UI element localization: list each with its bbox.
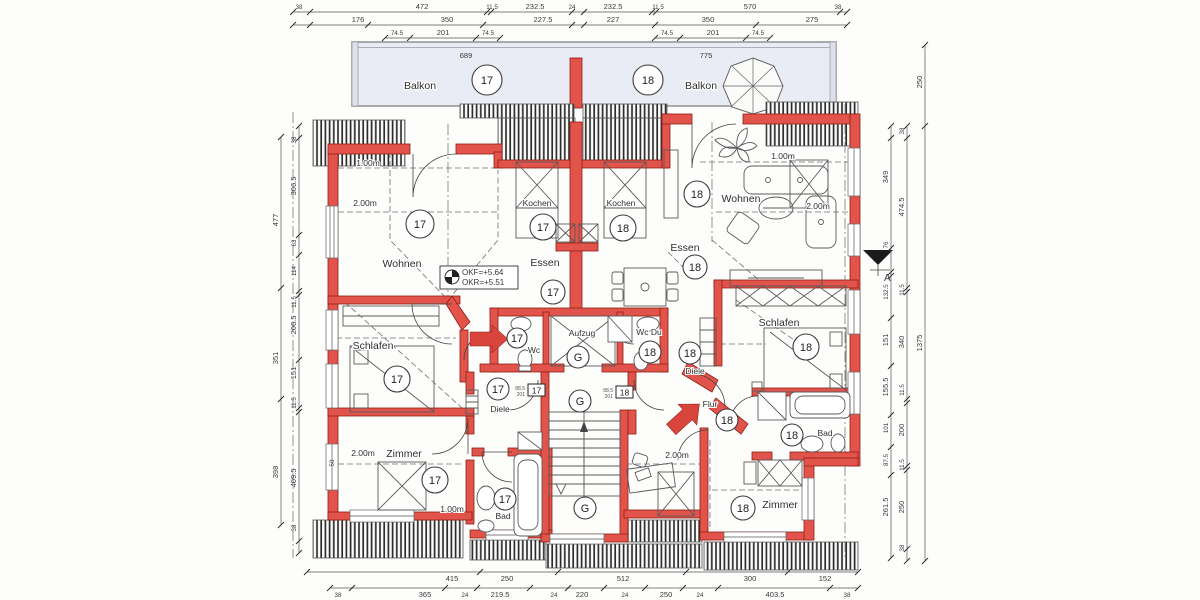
svg-text:219.5: 219.5 xyxy=(491,590,510,599)
svg-text:227.5: 227.5 xyxy=(534,15,553,24)
dim-extra-50: 50 xyxy=(329,459,336,466)
svg-text:415: 415 xyxy=(446,574,459,583)
stair-arrow-outline xyxy=(556,484,566,494)
svg-text:340: 340 xyxy=(897,336,906,349)
svg-text:403.5: 403.5 xyxy=(766,590,785,599)
svg-text:11.5: 11.5 xyxy=(899,284,906,296)
unit-badge-17: 17 xyxy=(494,488,516,510)
balcony-width-left: 689 xyxy=(460,51,473,60)
room-label-zimmer-18: Zimmer xyxy=(762,499,798,511)
svg-text:151: 151 xyxy=(289,367,298,380)
svg-text:1375: 1375 xyxy=(915,335,924,352)
svg-text:132.5: 132.5 xyxy=(883,284,890,300)
room-label-schlafen-17: Schlafen xyxy=(353,340,394,352)
unit-badge-17: 17 xyxy=(507,328,527,348)
svg-text:38: 38 xyxy=(835,4,842,11)
unit-badge-18: 18 xyxy=(633,65,663,95)
svg-text:74.5: 74.5 xyxy=(391,30,404,37)
svg-text:114: 114 xyxy=(291,266,298,276)
svg-text:306.5: 306.5 xyxy=(289,177,298,196)
svg-text:24: 24 xyxy=(462,592,469,599)
room-labels: Wohnen Wohnen Kochen Kochen Essen Essen … xyxy=(351,151,833,521)
svg-text:17: 17 xyxy=(391,374,403,386)
svg-text:472: 472 xyxy=(416,2,429,11)
height-line-label: 1.00m xyxy=(440,504,464,514)
unit-badge-18: 18 xyxy=(683,255,707,279)
svg-text:349: 349 xyxy=(881,171,890,184)
unit-badge-18: 18 xyxy=(679,342,701,364)
room-label-aufzug: Aufzug xyxy=(569,328,596,338)
svg-text:232.5: 232.5 xyxy=(526,2,545,11)
core-badge-g: G xyxy=(574,497,596,519)
wardrobe-17 xyxy=(343,306,439,326)
svg-text:250: 250 xyxy=(915,76,924,89)
svg-text:18: 18 xyxy=(644,347,656,359)
unit-badge-18: 18 xyxy=(639,341,661,363)
unit-badge-17: 17 xyxy=(487,378,509,400)
unit-badge-18: 18 xyxy=(684,181,710,207)
svg-text:512: 512 xyxy=(617,574,630,583)
svg-text:300: 300 xyxy=(744,574,757,583)
svg-text:18: 18 xyxy=(721,415,733,427)
svg-text:176: 176 xyxy=(352,15,365,24)
room-label-essen-18: Essen xyxy=(670,242,699,254)
door-plate-17: 17 xyxy=(528,384,545,396)
svg-text:87.5: 87.5 xyxy=(883,453,890,466)
svg-text:474.5: 474.5 xyxy=(897,198,906,217)
room-label-diele-18: Diele xyxy=(685,366,705,376)
room-label-balkon-left: Balkon xyxy=(404,80,436,92)
floor-plan-drawing: 689 775 Balkon Balkon xyxy=(0,0,1200,600)
height-line-label: 1.00m xyxy=(356,158,380,168)
level-note-box: OKF=+5.64 OKR=+5.51 xyxy=(440,266,518,289)
svg-text:18: 18 xyxy=(800,342,812,354)
furniture xyxy=(343,128,850,536)
window xyxy=(848,224,860,256)
svg-text:250: 250 xyxy=(660,590,673,599)
door-size-height: 201 xyxy=(605,394,614,400)
svg-text:24: 24 xyxy=(697,592,704,599)
window xyxy=(802,478,814,520)
svg-text:11.5: 11.5 xyxy=(291,296,298,308)
svg-text:18: 18 xyxy=(684,348,696,360)
svg-text:409.5: 409.5 xyxy=(289,469,298,488)
section-marker-triangle-icon xyxy=(863,250,893,265)
svg-text:17: 17 xyxy=(537,222,549,234)
svg-text:11.5: 11.5 xyxy=(291,397,298,409)
svg-text:227: 227 xyxy=(607,15,620,24)
svg-text:261.5: 261.5 xyxy=(881,498,890,517)
balcony-area: 689 775 Balkon Balkon xyxy=(352,42,836,114)
svg-text:18: 18 xyxy=(691,189,703,201)
svg-text:206.5: 206.5 xyxy=(289,316,298,335)
svg-text:17: 17 xyxy=(532,386,542,396)
room-label-wohnen-17: Wohnen xyxy=(383,258,422,270)
height-line-label: 2.00m xyxy=(665,450,689,460)
svg-text:18: 18 xyxy=(737,503,749,515)
svg-text:570: 570 xyxy=(744,2,757,11)
svg-text:24: 24 xyxy=(569,4,576,11)
svg-text:350: 350 xyxy=(441,15,454,24)
svg-text:155.5: 155.5 xyxy=(881,378,890,397)
svg-text:101: 101 xyxy=(883,422,890,433)
svg-text:18: 18 xyxy=(786,430,798,442)
room-label-bad-17: Bad xyxy=(495,511,510,521)
svg-text:200: 200 xyxy=(897,424,906,437)
svg-text:11.5: 11.5 xyxy=(899,459,906,471)
svg-text:G: G xyxy=(576,396,585,408)
svg-text:38: 38 xyxy=(296,4,303,11)
unit-badge-17: 17 xyxy=(541,280,565,304)
svg-text:11.5: 11.5 xyxy=(652,4,664,11)
window xyxy=(350,510,414,522)
svg-text:17: 17 xyxy=(481,75,493,87)
unit-badge-17: 17 xyxy=(384,366,410,392)
wardrobe-18 xyxy=(736,286,846,306)
svg-text:477: 477 xyxy=(271,214,280,227)
level-okr: OKR=+5.51 xyxy=(462,278,505,287)
room-label-diele-17: Diele xyxy=(490,404,510,414)
skylight-box-zimmer-17 xyxy=(378,462,426,510)
svg-text:38: 38 xyxy=(899,127,906,134)
plant-icon xyxy=(715,128,757,162)
room-label-wohnen-18: Wohnen xyxy=(722,193,761,205)
height-line-label: 1.00m xyxy=(771,151,795,161)
window xyxy=(848,148,860,196)
unit-badge-17: 17 xyxy=(530,214,556,240)
svg-text:351: 351 xyxy=(271,352,280,365)
room-label-flur-18: Flur xyxy=(703,399,718,409)
room-label-schlafen-18: Schlafen xyxy=(759,317,800,329)
svg-text:232.5: 232.5 xyxy=(604,2,623,11)
stairs xyxy=(549,412,620,496)
svg-text:11.5: 11.5 xyxy=(486,4,498,11)
wardrobe-zimmer-18 xyxy=(744,460,802,486)
entrance-arrow-17 xyxy=(470,325,508,353)
svg-text:74.5: 74.5 xyxy=(752,30,765,37)
svg-text:250: 250 xyxy=(501,574,514,583)
svg-text:17: 17 xyxy=(414,219,426,231)
window xyxy=(724,532,786,542)
svg-text:38: 38 xyxy=(844,592,851,599)
core-badge-g: G xyxy=(567,346,589,368)
room-label-balkon-right: Balkon xyxy=(685,80,717,92)
room-label-wc-17: Wc xyxy=(528,345,541,355)
svg-text:365: 365 xyxy=(419,590,432,599)
svg-text:17: 17 xyxy=(547,287,559,299)
stair-direction-arrow xyxy=(580,421,588,432)
window xyxy=(848,290,860,334)
svg-text:17: 17 xyxy=(429,475,441,487)
level-mark-icon xyxy=(445,270,459,284)
svg-text:18: 18 xyxy=(620,388,630,398)
room-label-kochen-17: Kochen xyxy=(523,198,552,208)
unit-badge-18: 18 xyxy=(731,496,755,520)
section-marker-letter: A xyxy=(884,273,891,284)
unit-badge-18: 18 xyxy=(610,215,636,241)
svg-text:74.5: 74.5 xyxy=(482,30,495,37)
room-label-essen-17: Essen xyxy=(530,257,559,269)
svg-text:201: 201 xyxy=(707,28,720,37)
height-line-label: 2.00m xyxy=(353,198,377,208)
unit-badge-18: 18 xyxy=(716,409,738,431)
window xyxy=(326,206,338,258)
door-size-height: 201 xyxy=(517,392,526,398)
room-label-wcdu-18: Wc Du xyxy=(636,327,662,337)
svg-text:350: 350 xyxy=(702,15,715,24)
svg-text:220: 220 xyxy=(576,590,589,599)
svg-text:G: G xyxy=(581,503,590,515)
svg-text:152: 152 xyxy=(819,574,832,583)
svg-text:11.5: 11.5 xyxy=(899,384,906,396)
core-badge-g: G xyxy=(569,390,591,412)
svg-text:38: 38 xyxy=(291,524,298,531)
door-plate-18: 18 xyxy=(616,386,633,398)
svg-text:18: 18 xyxy=(689,262,701,274)
dining-table-18 xyxy=(612,268,678,306)
floor-plan-scan: 689 775 Balkon Balkon xyxy=(0,0,1200,600)
room-label-bad-18: Bad xyxy=(817,428,832,438)
svg-text:17: 17 xyxy=(499,494,511,506)
window xyxy=(326,310,338,350)
svg-text:G: G xyxy=(574,352,583,364)
svg-text:24: 24 xyxy=(622,592,629,599)
unit-badge-17: 17 xyxy=(422,467,448,493)
svg-text:63: 63 xyxy=(291,239,298,246)
svg-text:24: 24 xyxy=(551,592,558,599)
window xyxy=(550,534,604,544)
svg-text:250: 250 xyxy=(897,501,906,514)
unit-badge-18: 18 xyxy=(781,424,803,446)
svg-text:74.5: 74.5 xyxy=(661,30,674,37)
svg-text:18: 18 xyxy=(617,223,629,235)
svg-text:38: 38 xyxy=(291,136,298,143)
desk-area xyxy=(627,452,694,516)
svg-text:76: 76 xyxy=(883,241,890,248)
svg-text:398: 398 xyxy=(271,466,280,479)
window xyxy=(326,364,338,408)
svg-text:17: 17 xyxy=(492,384,504,396)
svg-text:38: 38 xyxy=(899,544,906,551)
svg-text:18: 18 xyxy=(642,75,654,87)
diele-18-shelf xyxy=(700,318,716,366)
height-line-label: 2.00m xyxy=(806,201,830,211)
height-line-label: 2.00m xyxy=(351,448,375,458)
room-label-zimmer-17: Zimmer xyxy=(386,448,422,460)
svg-text:38: 38 xyxy=(335,592,342,599)
balcony-width-right: 775 xyxy=(700,51,713,60)
unit-badge-18: 18 xyxy=(793,334,819,360)
unit-badge-17: 17 xyxy=(406,210,434,238)
svg-text:201: 201 xyxy=(437,28,450,37)
room-label-kochen-18: Kochen xyxy=(607,198,636,208)
balcony-divider-wall xyxy=(570,58,582,108)
unit-badge-17: 17 xyxy=(472,65,502,95)
svg-text:17: 17 xyxy=(511,333,523,345)
bad-18-fixtures xyxy=(758,392,850,452)
svg-text:275: 275 xyxy=(806,15,819,24)
svg-text:151: 151 xyxy=(881,334,890,347)
level-okf: OKF=+5.64 xyxy=(462,268,504,277)
